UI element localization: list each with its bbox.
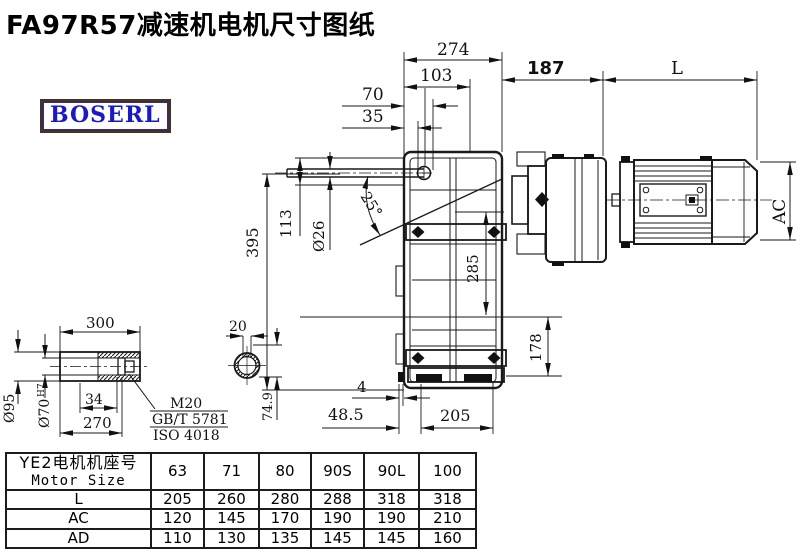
- dim-187-label: 187: [527, 58, 565, 79]
- dim-35-label: 35: [362, 107, 384, 127]
- dim-AC-label: AC: [770, 199, 790, 225]
- table-cell: 288: [311, 490, 364, 509]
- table-col-header: 90L: [364, 453, 419, 490]
- dim-dia95-label: Ø95: [2, 394, 18, 423]
- dim-70-label: 70: [362, 85, 384, 105]
- table-col-header: 90S: [311, 453, 364, 490]
- table-col-header: 80: [259, 453, 311, 490]
- dim-113-label: 113: [277, 209, 295, 238]
- dim-178-label: 178: [527, 333, 545, 362]
- table-row: AC 120 145 170 190 190 210: [6, 509, 476, 528]
- bolt-diamond-icon: [412, 352, 425, 364]
- table-cell: 110: [151, 529, 204, 548]
- table-row-label: L: [6, 490, 151, 509]
- leader-line: [129, 374, 155, 409]
- dim-angle-label: 25°: [357, 189, 386, 221]
- bolt-diamond-icon: [412, 226, 425, 238]
- dim-300-label: 300: [86, 314, 115, 332]
- dim-20-label: 20: [229, 319, 247, 335]
- dim-dia26-label: Ø26: [310, 221, 328, 252]
- motor-fins: [634, 166, 712, 238]
- table-cell: 190: [364, 509, 419, 528]
- shaft-section-detail: [228, 336, 266, 385]
- table-row-label: AD: [6, 529, 151, 548]
- dim-205-label: 205: [440, 406, 471, 425]
- table-cell: 318: [419, 490, 476, 509]
- dim-dia70-tol-label: H7: [37, 383, 47, 397]
- table-header-motor-size: YE2电机机座号 Motor Size: [6, 453, 151, 490]
- table-cell: 130: [204, 529, 259, 548]
- dim-L-label: L: [671, 58, 683, 79]
- dim-74-9-label: 74.9: [261, 392, 276, 421]
- helical-gear-unit: [512, 152, 606, 266]
- dim-285-label: 285: [464, 254, 482, 283]
- dim-103-label: 103: [420, 66, 452, 86]
- motor-side-view: [606, 156, 772, 248]
- dim-395-label: 395: [243, 227, 262, 258]
- table-col-header: 71: [204, 453, 259, 490]
- table-header-cn: YE2电机机座号: [7, 454, 150, 472]
- table-cell: 260: [204, 490, 259, 509]
- bolt-diamond-icon: [488, 352, 501, 364]
- motor-size-table: YE2电机机座号 Motor Size 63 71 80 90S 90L 100…: [5, 452, 477, 549]
- dim-274-label: 274: [437, 40, 469, 60]
- table-cell: 135: [259, 529, 311, 548]
- dim-dia70-label: Ø70: [37, 399, 53, 428]
- bolt-spec-m20: M20: [170, 396, 202, 412]
- table-col-header: 63: [151, 453, 204, 490]
- table-cell: 318: [364, 490, 419, 509]
- dim-270-label: 270: [83, 414, 112, 432]
- table-row: L 205 260 280 288 318 318: [6, 490, 476, 509]
- table-cell: 210: [419, 509, 476, 528]
- table-cell: 145: [204, 509, 259, 528]
- input-shaft: [275, 169, 432, 177]
- dimension-labels: 274 103 70 35 187 L 395 113 Ø26 25° 285 …: [2, 40, 790, 444]
- dim-48-5-label: 48.5: [328, 405, 364, 424]
- table-header-en: Motor Size: [7, 473, 150, 489]
- table-cell: 145: [311, 529, 364, 548]
- table-cell: 205: [151, 490, 204, 509]
- dim-34-label: 34: [85, 392, 103, 408]
- table-cell: 280: [259, 490, 311, 509]
- bolt-spec-gb: GB/T 5781: [152, 412, 228, 428]
- dim-4-label: 4: [357, 378, 367, 396]
- table-col-header: 100: [419, 453, 476, 490]
- table-cell: 160: [419, 529, 476, 548]
- bolt-spec-iso: ISO 4018: [153, 428, 220, 444]
- table-cell: 145: [364, 529, 419, 548]
- page: FA97R57减速机电机尺寸图纸 BOSERL: [0, 0, 800, 555]
- table-row: AD 110 130 135 145 145 160: [6, 529, 476, 548]
- table-cell: 120: [151, 509, 204, 528]
- table-row-label: AC: [6, 509, 151, 528]
- table-cell: 190: [311, 509, 364, 528]
- fan-cowl: [712, 160, 757, 244]
- bolt-diamond-icon: [488, 226, 501, 238]
- table-cell: 170: [259, 509, 311, 528]
